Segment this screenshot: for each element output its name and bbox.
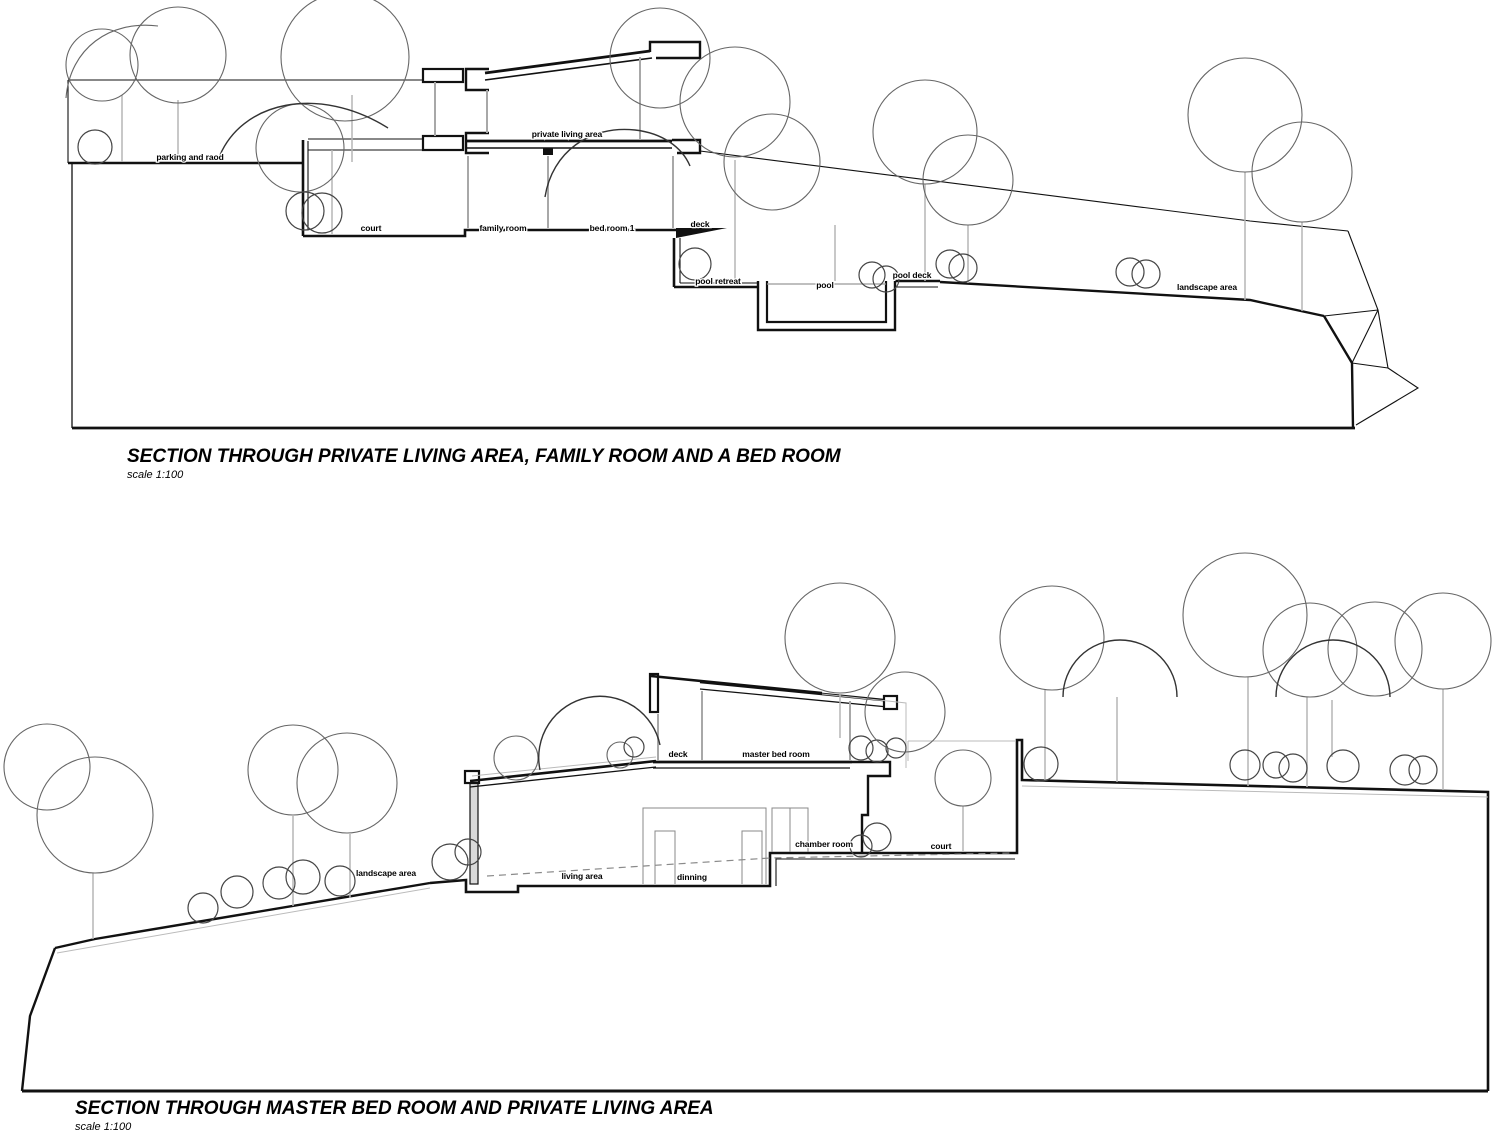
cliff-edge [22,948,55,1091]
canopy-arc [1276,640,1390,697]
tree-canopy [37,757,153,873]
floor-left-block [423,136,463,150]
section2-title: SECTION THROUGH MASTER BED ROOM AND PRIV… [75,1098,714,1119]
section1-scale: scale 1:100 [127,469,184,481]
bush [886,738,906,758]
bush [1409,756,1437,784]
court-tree-canopy [935,750,991,806]
tree-canopy [1328,602,1422,696]
tree-canopy [1395,593,1491,689]
bush [263,867,295,899]
bush [286,860,320,894]
tree-canopy [785,583,895,693]
court-label: court [931,841,952,851]
tree-canopy [1188,58,1302,172]
left-wall [470,782,478,884]
canopy-arc [1063,640,1177,697]
bush [1390,755,1420,785]
tree-canopy [4,724,90,810]
chamber-floor-inner [776,859,1015,886]
tree-canopy [923,135,1013,225]
deck-label: deck [669,749,688,759]
tree-trunks [93,677,1443,939]
sections-svg: parking and raod private living area cou… [0,0,1500,1135]
section1-terrain [68,80,1418,428]
master-roof-right-block [884,696,897,709]
door-frame [742,831,762,884]
tree-canopy [494,736,538,780]
bush [1230,750,1260,780]
bush [849,736,873,760]
roof-left-block [423,69,463,82]
tree-canopy [66,29,138,101]
section2-vegetation [4,553,1491,939]
section-1-drawing: parking and raod private living area cou… [66,0,1418,481]
bush [1132,260,1160,288]
section-2-drawing: landscape area deck master bed room cham… [4,553,1491,1133]
landscape-slope [55,883,430,948]
master-bed-room-label: master bed room [742,749,810,759]
tree-canopy [281,0,409,121]
door-frame [655,831,675,884]
bush [78,130,112,164]
bush [624,737,644,757]
right-steps [852,762,890,853]
bush [1024,747,1058,781]
deck-label: deck [691,219,710,229]
pool-label: pool [816,280,834,290]
canopy-arc [545,129,690,197]
section2-scale: scale 1:100 [75,1121,132,1133]
drawing-sheet: parking and raod private living area cou… [0,0,1500,1135]
section2-terrain [22,740,1488,1091]
pool-deck-label: pool deck [893,270,932,280]
section1-building [308,42,700,228]
roof-right-parapet [650,42,700,58]
living-area-label: living area [562,871,603,881]
tree-canopy [1183,553,1307,677]
rock-facets [1348,231,1418,425]
tree-canopy [724,114,820,210]
landscape-label: landscape area [356,868,416,878]
pool-retreat-label: pool retreat [695,276,741,286]
court-beyond-line [908,741,1016,761]
tree-canopy [1000,586,1104,690]
tree-canopy [130,7,226,103]
bush [1116,258,1144,286]
tree-canopy [297,733,397,833]
chamber-room-label: chamber room [795,839,853,849]
bed-room-label: bed room 1 [590,223,635,233]
tree-canopy [256,104,344,192]
floor-left-parapet [466,133,489,153]
ridge-line [700,151,1348,231]
landscape-label: landscape area [1177,282,1237,292]
master-roof-left-fascia [650,674,658,712]
private-living-label: private living area [532,129,603,139]
slope-parallel-line [57,888,430,953]
dinning-label: dinning [677,872,707,882]
section1-vegetation [66,0,1352,311]
court-label: court [361,223,382,233]
bush [221,876,253,908]
family-room-label: family room [479,223,527,233]
bush [1327,750,1359,782]
entry-bridge [308,139,423,150]
bush [432,844,468,880]
deck-slab [676,228,727,238]
bush [866,740,888,762]
building-ground-cut [430,740,1488,1091]
bush [1279,754,1307,782]
partition-downstand [543,148,553,155]
parking-label: parking and raod [156,152,223,162]
tree-canopy [1252,122,1352,222]
rock-edge [1324,316,1353,428]
bush [188,893,218,923]
rock-facet-diagonals [1324,310,1388,368]
section1-title: SECTION THROUGH PRIVATE LIVING AREA, FAM… [127,446,842,467]
landscape-slope [940,282,1324,316]
tree-canopy [865,672,945,752]
